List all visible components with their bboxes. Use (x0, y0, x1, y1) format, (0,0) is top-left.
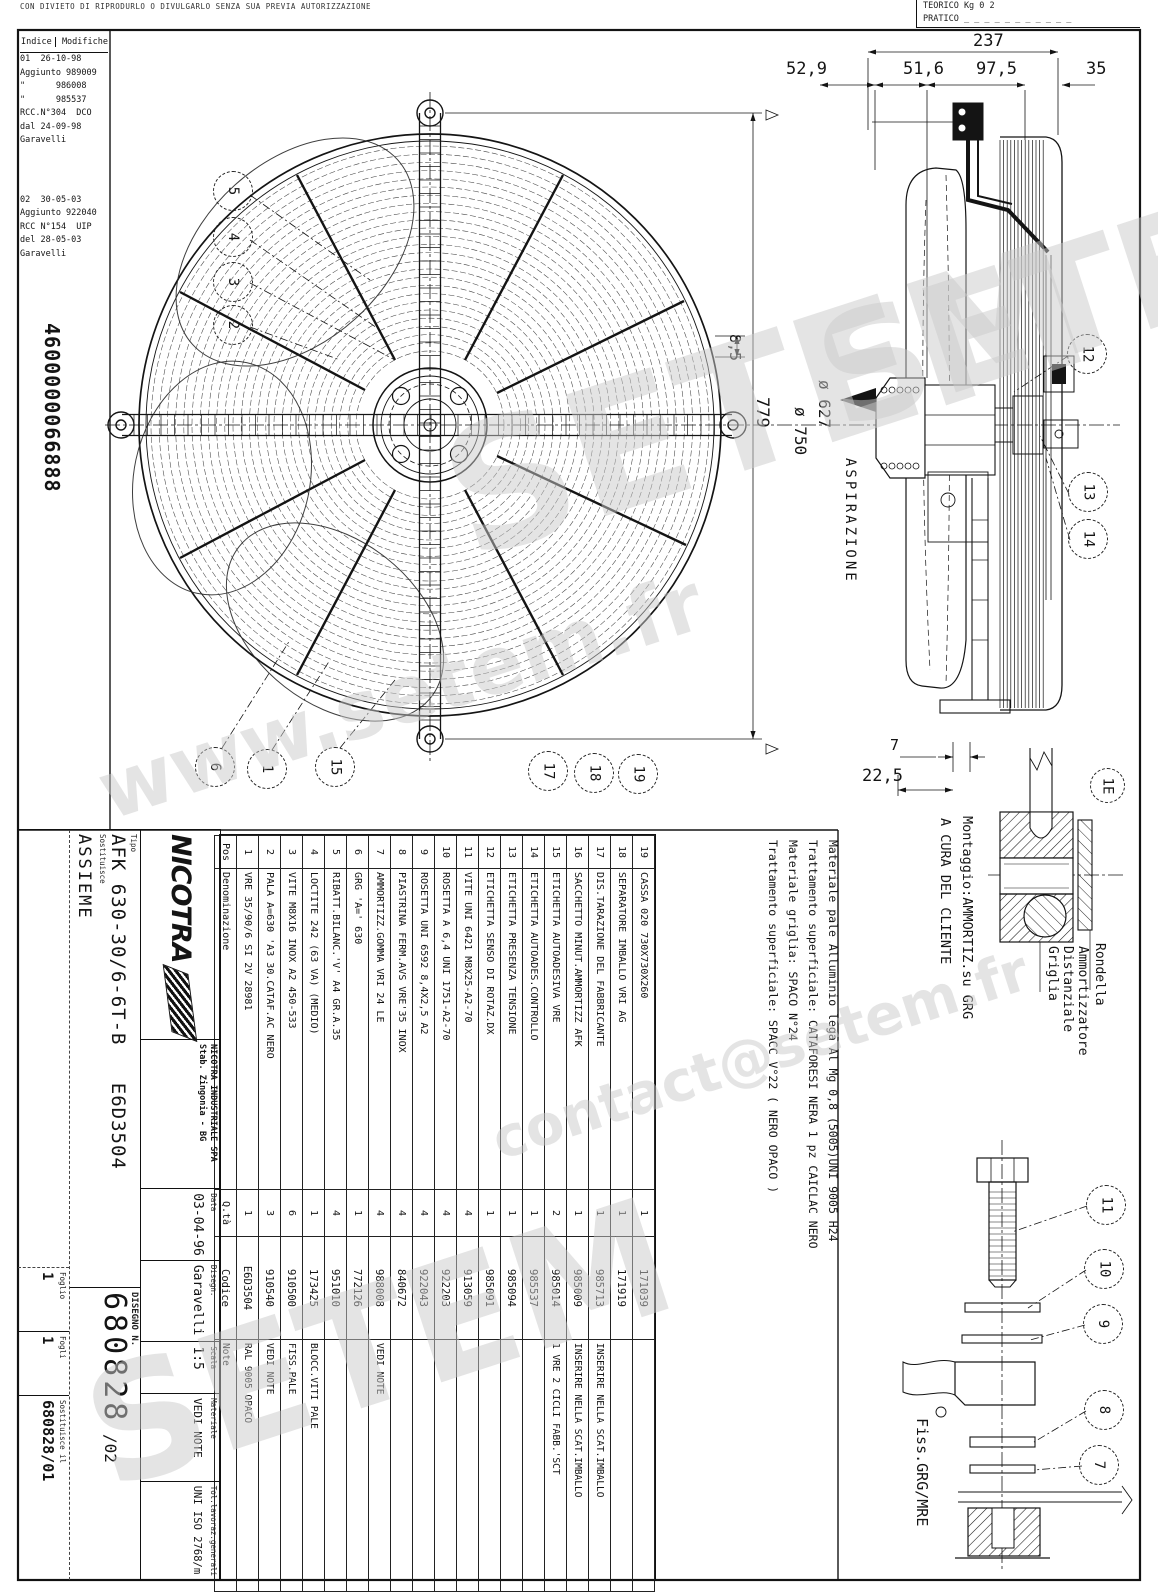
part-qty: 1 (589, 1190, 611, 1237)
part-den: SACCHETTO MINUT.AMMORTIZZ AFK (567, 869, 589, 1190)
date-value: 03-04-96 (190, 1193, 207, 1256)
part-code: 910540 (259, 1237, 281, 1340)
tolerance-cell: Tol.lavoraz.generali UNI ISO 2768/m (141, 1482, 220, 1580)
dim-22-5: 22,5 (862, 766, 903, 786)
part-den: ETICHETTA AUTOADES.CONTROLLO (523, 869, 545, 1190)
type-value: AFK 630-30/6-6T-B (107, 834, 129, 1045)
griglia-label: Griglia (1045, 946, 1060, 1001)
part-den: VRE 35/90/6 SI 2V 28981 (237, 869, 259, 1190)
part-den: ETICHETTA AUTOADESIVA VRE (545, 869, 567, 1190)
part-qty: 1 (501, 1190, 523, 1237)
part-code: 922203 (435, 1237, 457, 1340)
part-note: BLOCC.VITI PALE (303, 1340, 325, 1592)
part-qty: 2 (545, 1190, 567, 1237)
part-code: 985014 (545, 1237, 567, 1340)
part-pos: 5 (325, 836, 347, 869)
balloon-7: 7 (1079, 1445, 1119, 1485)
part-code: 951010 (325, 1237, 347, 1340)
part-den: VITE M8X16 INOX A2 450-533 (281, 869, 303, 1190)
part-code: 985537 (523, 1237, 545, 1340)
part-code: 922043 (413, 1237, 435, 1340)
tolerance-label: Tol.lavoraz.generali (209, 1486, 218, 1576)
balloon-11: 11 (1086, 1185, 1126, 1225)
scale-label: Scala (209, 1346, 218, 1389)
revision-line: " 985537 (20, 94, 108, 108)
material-note-3: Materiale griglia: SPACO N°24 (786, 840, 800, 1041)
company-site: Stab. Zingonia - BG (196, 1044, 207, 1184)
material-cell: Materiale VEDI NOTE (141, 1394, 220, 1482)
scale-cell: Scala 1:5 (141, 1342, 220, 1394)
balloon-17-label: 17 (540, 763, 556, 780)
part-qty: 4 (457, 1190, 479, 1237)
balloon-18-label: 18 (586, 765, 602, 782)
part-den: GRG 'A=' 630 (347, 869, 369, 1190)
balloon-10-label: 10 (1096, 1261, 1112, 1278)
balloon-6-label: 6 (207, 763, 223, 771)
dim-97-5: 97,5 (976, 59, 1017, 79)
part-note (523, 1340, 545, 1592)
part-row-2: 2PALA A=630 'A3 30.CATAF.AC NERO3910540V… (259, 836, 281, 1592)
weight-practical: PRATICO _ _ _ _ _ _ _ _ _ _ _ (923, 13, 1140, 26)
part-note: VEDI NOTE (259, 1340, 281, 1592)
sheet-cell: Foglio 1 (18, 1268, 69, 1332)
part-pos: 1 (237, 836, 259, 869)
part-pos: 4 (303, 836, 325, 869)
balloon-15: 15 (315, 747, 355, 787)
revision-line: Aggiunto 922040 (20, 207, 108, 221)
tolerance-value: UNI ISO 2768/m (191, 1486, 205, 1575)
part-row-7: 7AMMORTIZZ.GOMMA VRI 24 LE4988008VEDI NO… (369, 836, 391, 1592)
part-pos: 7 (369, 836, 391, 869)
part-note: RAL 9005 OPACO (237, 1340, 259, 1592)
detail-reference-label: 1E (1099, 777, 1115, 794)
part-pos: 10 (435, 836, 457, 869)
part-pos: 19 (633, 836, 655, 869)
part-row-5: 5RIBATT.BILANC.'V' A4 GR.A.354951010 (325, 836, 347, 1592)
part-code: 840672 (391, 1237, 413, 1340)
dim-8-5: 8,5 (726, 334, 744, 361)
material-note-4: Trattamento superficiale: SPACC V°22 ( N… (766, 840, 780, 1193)
part-row-8: 8PIASTRINA FERM.AVS VRE'35 INOX4840672 (391, 836, 413, 1592)
code-value: E6D3504 (107, 1083, 129, 1170)
part-note (413, 1340, 435, 1592)
part-note (633, 1340, 655, 1592)
balloon-15-label: 15 (327, 759, 343, 776)
balloon-1: 1 (247, 749, 287, 789)
parts-table: 19CASSA 020 730X730X260117103918SEPARATO… (220, 835, 655, 1580)
balloon-8-label: 8 (1096, 1406, 1112, 1414)
part-pos: 14 (523, 836, 545, 869)
supersedes-value: 680828/01 (39, 1400, 57, 1481)
part-den: ETICHETTA SENSO DI ROTAZ.DX (479, 869, 501, 1190)
part-code: 985094 (501, 1237, 523, 1340)
revision-line: 02 30-05-03 (20, 194, 108, 208)
part-row-12: 12ETICHETTA SENSO DI ROTAZ.DX1985091 (479, 836, 501, 1592)
replaces-label: Sostituisce (98, 834, 107, 1283)
part-row-10: 10ROSETTA A 6,4 UNI 1751-A2-704922203 (435, 836, 457, 1592)
part-note (611, 1340, 633, 1592)
nicotra-logo: NICOTRA (141, 830, 220, 1040)
sheet-value: 1 (39, 1272, 55, 1280)
part-pos: 12 (479, 836, 501, 869)
aspirazione-label: ASPIRAZIONE (842, 458, 858, 584)
revision-line: Garavelli (20, 134, 108, 148)
balloon-11-label: 11 (1098, 1197, 1114, 1214)
dim-51-6: 51,6 (903, 59, 944, 79)
rondella-label: Rondella (1092, 943, 1107, 1006)
part-den: PALA A=630 'A3 30.CATAF.AC NERO (259, 869, 281, 1190)
part-pos: 8 (391, 836, 413, 869)
part-code: 772126 (347, 1237, 369, 1340)
balloon-14: 14 (1068, 519, 1108, 559)
dim-52-9: 52,9 (786, 59, 827, 79)
part-note (501, 1340, 523, 1592)
part-qty: 1 (347, 1190, 369, 1237)
part-note (435, 1340, 457, 1592)
logo-text: NICOTRA (165, 834, 196, 963)
revision-line: " 986008 (20, 80, 108, 94)
company-name: NICOTRA INDUSTRIALE SPA (207, 1044, 218, 1184)
part-qty: 1 (633, 1190, 655, 1237)
balloon-3-label: 3 (225, 278, 241, 286)
balloon-2-label: 2 (225, 321, 241, 329)
balloon-10: 10 (1084, 1249, 1124, 1289)
balloon-7-label: 7 (1091, 1461, 1107, 1469)
revision-line: Garavelli (20, 248, 108, 262)
part-qty: 4 (325, 1190, 347, 1237)
part-row-11: 11VITE UNI 6421 M8X25-A2-704913059 (457, 836, 479, 1592)
company-info: NICOTRA INDUSTRIALE SPA Stab. Zingonia -… (141, 1040, 220, 1189)
part-note (457, 1340, 479, 1592)
montaggio-note: Montaggio:AMMORTIZ.su GRG (959, 816, 975, 1019)
balloon-13-label: 13 (1080, 484, 1096, 501)
balloon-13: 13 (1068, 472, 1108, 512)
drafter-cell: Disegn. Garavelli (141, 1261, 220, 1343)
sheets-cell: Fogli 1 (18, 1332, 69, 1396)
engineering-drawing-page: { "page": { "top_note": "CON DIVIETO DI … (0, 0, 1158, 1591)
part-note (347, 1340, 369, 1592)
part-code: 910500 (281, 1237, 303, 1340)
part-row-13: 13ETICHETTA PRESENZA TENSIONE1985094 (501, 836, 523, 1592)
ammortizzatore-label: Ammortizzatore (1075, 946, 1090, 1056)
weight-box: TEORICO Kg 0 2 PRATICO _ _ _ _ _ _ _ _ _… (916, 0, 1140, 28)
scale-value: 1:5 (190, 1346, 207, 1369)
drafter-label: Disegn. (209, 1265, 218, 1338)
balloon-12-label: 12 (1079, 346, 1095, 363)
flag-icon (163, 963, 198, 1042)
revision-block: Indice Modifiche 01 26-10-98Aggiunto 989… (20, 32, 108, 261)
part-row-1: 1VRE 35/90/6 SI 2V 289811E6D3504RAL 9005… (237, 836, 259, 1592)
revision-line: dal 24-09-98 (20, 121, 108, 135)
part-row-6: 6GRG 'A=' 6301772126 (347, 836, 369, 1592)
revision-line: del 28-05-03 (20, 234, 108, 248)
fiss-grg-mre-label: Fiss.GRG/MRE (913, 1418, 931, 1526)
part-den: VITE UNI 6421 M8X25-A2-70 (457, 869, 479, 1190)
part-row-19: 19CASSA 020 730X730X2601171039 (633, 836, 655, 1592)
part-note: INSERIRE NELLA SCAT.IMBALLO (589, 1340, 611, 1592)
a-cura-del-cliente-note: A CURA DEL CLIENTE (937, 818, 953, 964)
part-pos: 16 (567, 836, 589, 869)
type-label: Tipo (129, 834, 138, 1283)
part-qty: 1 (567, 1190, 589, 1237)
sheets-value: 1 (39, 1336, 55, 1344)
balloon-2: 2 (213, 305, 253, 345)
balloon-9: 9 (1083, 1304, 1123, 1344)
part-code: 913059 (457, 1237, 479, 1340)
part-code: 985713 (589, 1237, 611, 1340)
dim-dia-627: ø 627 (815, 380, 834, 428)
date-label: Data (209, 1193, 218, 1256)
part-qty: 1 (479, 1190, 501, 1237)
part-pos: 15 (545, 836, 567, 869)
sheets-label: Fogli (58, 1336, 67, 1391)
dim-35: 35 (1086, 59, 1106, 79)
drawing-number-cell: DISEGNO N. 680828 /02 (70, 1288, 139, 1580)
material-note-2: Trattamento superficiale: CATAFORESI NER… (806, 840, 820, 1249)
part-note: FISS.PALE (281, 1340, 303, 1592)
balloon-4: 4 (213, 217, 253, 257)
type-cell: Tipo AFK 630-30/6-6T-B E6D3504 Sostituis… (70, 830, 139, 1288)
balloon-4-label: 4 (225, 233, 241, 241)
balloon-18: 18 (574, 753, 614, 793)
material-note-1: Materiale pale Alluminio lega Al Mg 0,8 … (826, 840, 840, 1242)
part-code: 985091 (479, 1237, 501, 1340)
balloon-12: 12 (1067, 334, 1107, 374)
part-den: LOCTITE 242 (63 VA) (MEDIO) (303, 869, 325, 1190)
part-note: INSERIRE NELLA SCAT.IMBALLO (567, 1340, 589, 1592)
part-row-4: 4LOCTITE 242 (63 VA) (MEDIO)1173425BLOCC… (303, 836, 325, 1592)
part-qty: 1 (611, 1190, 633, 1237)
balloon-19: 19 (618, 754, 658, 794)
drawing-number-value: 680828 (97, 1292, 132, 1424)
part-den: RIBATT.BILANC.'V' A4 GR.A.35 (325, 869, 347, 1190)
part-note: VEDI NOTE (369, 1340, 391, 1592)
part-den: SEPARATORE IMBALLO VRI AG (611, 869, 633, 1190)
balloon-14-label: 14 (1080, 531, 1096, 548)
drafter-value: Garavelli (190, 1265, 207, 1335)
part-qty: 1 (303, 1190, 325, 1237)
part-row-3: 3VITE M8X16 INOX A2 450-5336910500FISS.P… (281, 836, 303, 1592)
part-pos: 18 (611, 836, 633, 869)
dim-dia-750: ø 750 (791, 407, 810, 455)
part-row-16: 16SACCHETTO MINUT.AMMORTIZZ AFK1985009IN… (567, 836, 589, 1592)
part-den: DIS.TARAZIONE DEL FABBRICANTE (589, 869, 611, 1190)
part-code: E6D3504 (237, 1237, 259, 1340)
balloon-3: 3 (213, 262, 253, 302)
drawing-revision: /02 (101, 1434, 120, 1463)
part-code: 985009 (567, 1237, 589, 1340)
copyright-note: CON DIVIETO DI RIPRODURLO O DIVULGARLO S… (20, 2, 371, 11)
revision-line: RCC N°154 UIP (20, 221, 108, 235)
part-note (325, 1340, 347, 1592)
date-cell: Data 03-04-96 (141, 1189, 220, 1261)
part-row-14: 14ETICHETTA AUTOADES.CONTROLLO1985537 (523, 836, 545, 1592)
material-value: VEDI NOTE (191, 1398, 206, 1458)
balloon-9-label: 9 (1095, 1320, 1111, 1328)
part-note (391, 1340, 413, 1592)
distanziale-label: Distanziale (1060, 946, 1075, 1032)
revision-line: 01 26-10-98 (20, 53, 108, 67)
part-qty: 3 (259, 1190, 281, 1237)
part-pos: 6 (347, 836, 369, 869)
supersedes-cell: Sostituisce il 680828/01 (18, 1396, 69, 1580)
dim-779: 779 (752, 397, 772, 428)
balloon-6: 6 (195, 747, 235, 787)
sheet-label: Foglio (58, 1272, 67, 1327)
part-qty: 1 (237, 1190, 259, 1237)
part-code: 988008 (369, 1237, 391, 1340)
part-qty: 4 (391, 1190, 413, 1237)
part-note (479, 1340, 501, 1592)
balloon-17: 17 (528, 751, 568, 791)
part-pos: 3 (281, 836, 303, 869)
part-qty: 1 (523, 1190, 545, 1237)
weight-theoretical: TEORICO Kg 0 2 (923, 0, 1140, 13)
material-label: Materiale (209, 1398, 218, 1477)
revision-line: RCC.N°304 DCO (20, 107, 108, 121)
part-qty: 4 (413, 1190, 435, 1237)
part-den: ROSETTA A 6,4 UNI 1751-A2-70 (435, 869, 457, 1190)
part-den: PIASTRINA FERM.AVS VRE'35 INOX (391, 869, 413, 1190)
balloon-1-label: 1 (259, 765, 275, 773)
part-qty: 6 (281, 1190, 303, 1237)
part-pos: 9 (413, 836, 435, 869)
part-qty: 4 (369, 1190, 391, 1237)
part-number-vertical: 4600000066888 (40, 323, 64, 493)
part-pos: 13 (501, 836, 523, 869)
balloon-5: 5 (213, 171, 253, 211)
part-den: CASSA 020 730X730X260 (633, 869, 655, 1190)
supersedes-label: Sostituisce il (58, 1400, 67, 1576)
part-note: 1 VRE 2 CICLI FABB.'SCT (545, 1340, 567, 1592)
revision-header-indice: Indice (20, 37, 56, 47)
part-pos: 17 (589, 836, 611, 869)
part-row-9: 9ROSETTA UNI 6592 8,4X2,5 A24922043 (413, 836, 435, 1592)
balloon-19-label: 19 (630, 766, 646, 783)
revision-line: Aggiunto 989009 (20, 67, 108, 81)
part-pos: 11 (457, 836, 479, 869)
part-qty: 4 (435, 1190, 457, 1237)
revision-line (20, 148, 108, 194)
part-row-15: 15ETICHETTA AUTOADESIVA VRE29850141 VRE … (545, 836, 567, 1592)
part-den: ETICHETTA PRESENZA TENSIONE (501, 869, 523, 1190)
part-row-18: 18SEPARATORE IMBALLO VRI AG1171919 (611, 836, 633, 1592)
dim-7: 7 (890, 736, 899, 754)
detail-reference-1E: 1E (1090, 768, 1125, 803)
title-block: NICOTRA NICOTRA INDUSTRIALE SPA Stab. Zi… (18, 830, 220, 1580)
part-code: 171919 (611, 1237, 633, 1340)
assembly-title: ASSIEME (74, 834, 94, 1283)
balloon-8: 8 (1084, 1390, 1124, 1430)
part-pos: 2 (259, 836, 281, 869)
part-code: 171039 (633, 1237, 655, 1340)
part-row-17: 17DIS.TARAZIONE DEL FABBRICANTE1985713IN… (589, 836, 611, 1592)
part-den: ROSETTA UNI 6592 8,4X2,5 A2 (413, 869, 435, 1190)
part-den: AMMORTIZZ.GOMMA VRI 24 LE (369, 869, 391, 1190)
revision-header-modifiche: Modifiche (56, 37, 108, 47)
part-code: 173425 (303, 1237, 325, 1340)
dim-237: 237 (973, 31, 1004, 51)
balloon-5-label: 5 (225, 187, 241, 195)
